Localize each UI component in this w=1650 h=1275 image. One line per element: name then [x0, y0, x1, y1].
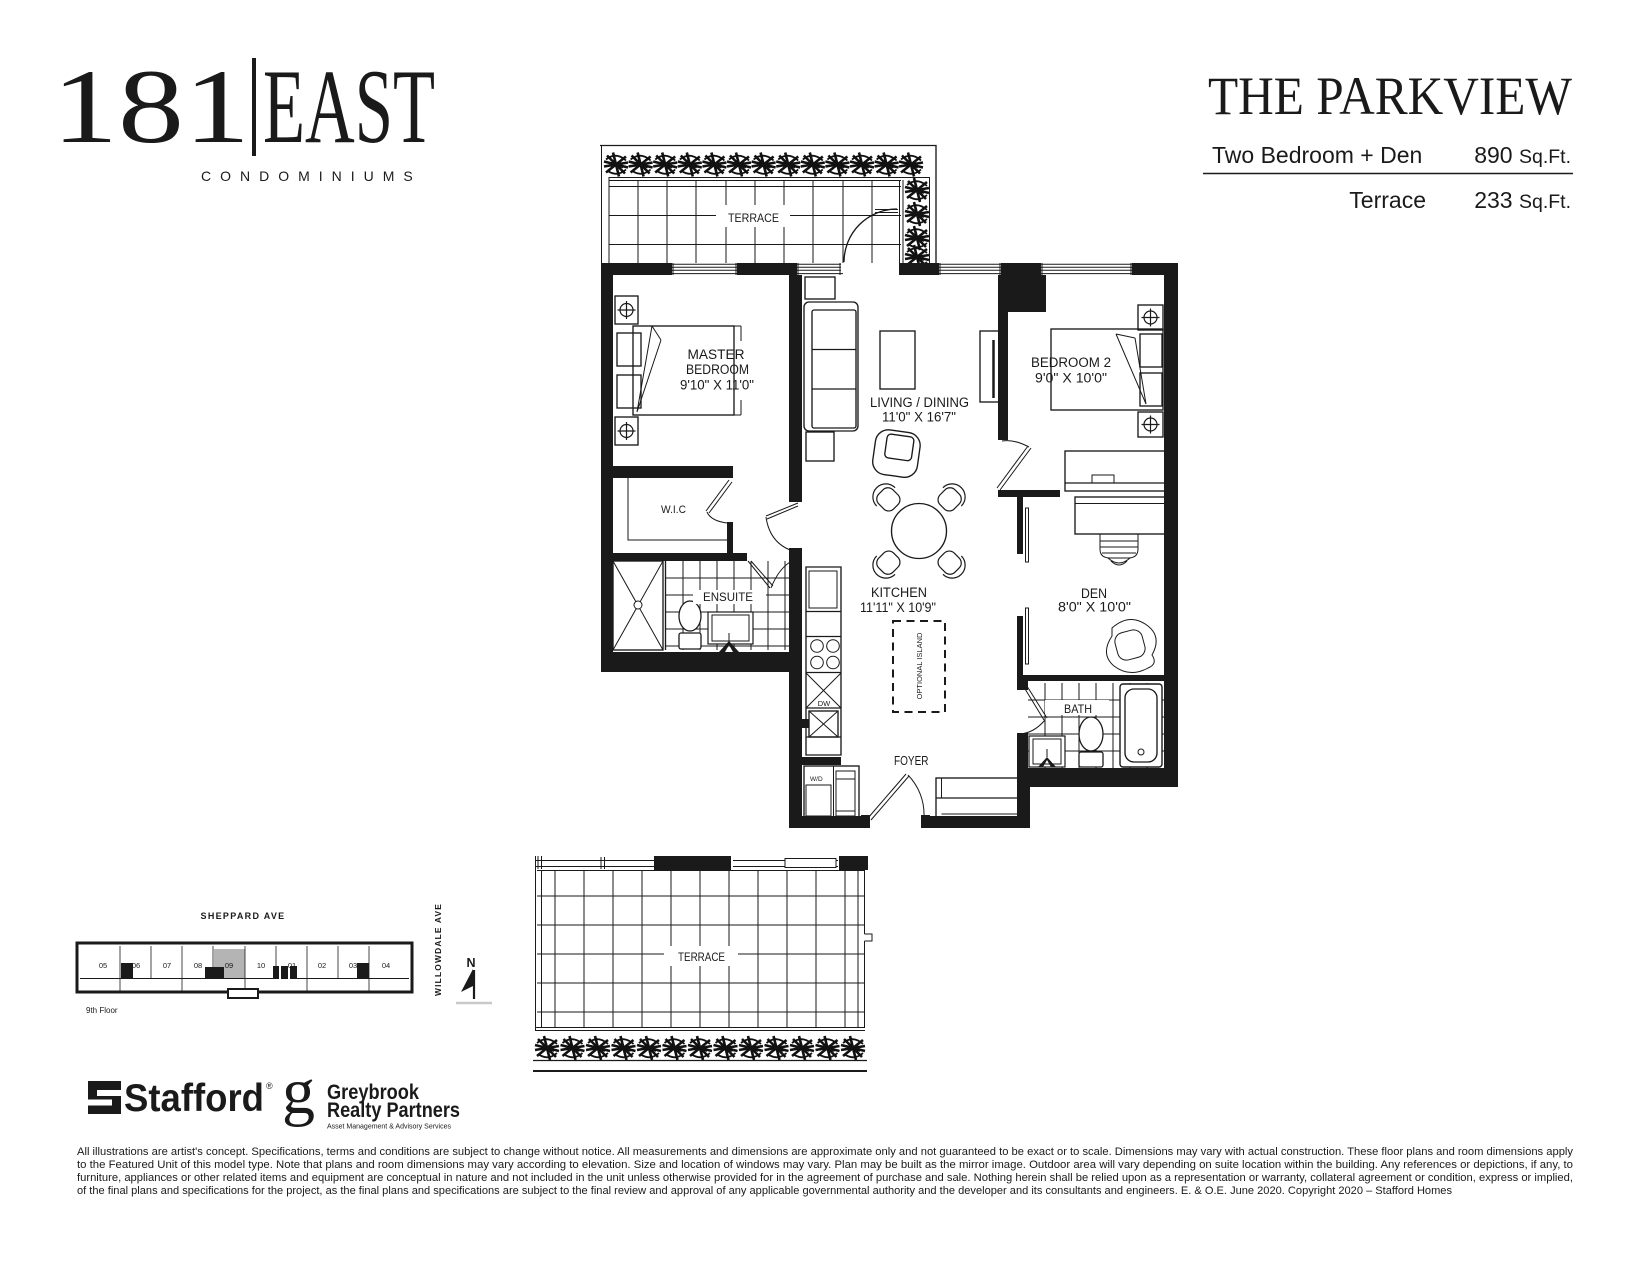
svg-text:06: 06 [132, 961, 140, 970]
svg-text:LIVING / DINING: LIVING / DINING [870, 395, 969, 410]
svg-text:9'0" X 10'0": 9'0" X 10'0" [1035, 371, 1107, 386]
svg-text:9th Floor: 9th Floor [86, 1006, 118, 1015]
svg-text:8'0" X 10'0": 8'0" X 10'0" [1058, 600, 1131, 615]
svg-text:890 Sq.Ft.: 890 Sq.Ft. [1474, 142, 1571, 168]
svg-text:233 Sq.Ft.: 233 Sq.Ft. [1474, 187, 1571, 213]
svg-text:Terrace: Terrace [1349, 187, 1426, 213]
svg-text:WILLOWDALE AVE: WILLOWDALE AVE [433, 903, 443, 996]
svg-text:CONDOMINIUMS: CONDOMINIUMS [201, 168, 422, 184]
svg-text:DW: DW [818, 699, 831, 708]
svg-text:Realty Partners: Realty Partners [327, 1099, 460, 1122]
svg-text:02: 02 [318, 961, 326, 970]
svg-text:W/D: W/D [810, 776, 823, 783]
svg-text:BATH: BATH [1064, 702, 1092, 716]
svg-text:Asset Management & Advisory Se: Asset Management & Advisory Services [327, 1122, 451, 1131]
svg-text:01: 01 [288, 961, 296, 970]
svg-text:TERRACE: TERRACE [678, 950, 725, 964]
svg-text:03: 03 [349, 961, 357, 970]
svg-text:FOYER: FOYER [894, 754, 929, 768]
svg-text:11'11" X 10'9": 11'11" X 10'9" [860, 600, 936, 615]
svg-text:W.I.C: W.I.C [661, 504, 686, 516]
svg-text:11'0" X 16'7": 11'0" X 16'7" [882, 410, 956, 425]
svg-text:04: 04 [382, 961, 390, 970]
svg-text:MASTER: MASTER [688, 347, 745, 362]
svg-text:TERRACE: TERRACE [728, 211, 779, 225]
svg-text:08: 08 [194, 961, 202, 970]
svg-text:07: 07 [163, 961, 171, 970]
svg-text:All illustrations are artist's: All illustrations are artist's concept. … [77, 1146, 1574, 1158]
svg-text:of the final plans and specifi: of the final plans and specifications fo… [77, 1185, 1453, 1197]
svg-text:to the Featured Unit of this m: to the Featured Unit of this model type.… [77, 1159, 1573, 1171]
svg-text:SHEPPARD AVE: SHEPPARD AVE [201, 911, 286, 921]
svg-text:THE PARKVIEW: THE PARKVIEW [1208, 66, 1572, 126]
svg-text:OPTIONAL ISLAND: OPTIONAL ISLAND [915, 632, 924, 699]
svg-text:®: ® [266, 1081, 273, 1091]
svg-text:g: g [282, 1055, 315, 1128]
svg-text:9'10" X 11'0": 9'10" X 11'0" [680, 378, 754, 393]
svg-text:Two Bedroom + Den: Two Bedroom + Den [1212, 142, 1422, 168]
svg-text:BEDROOM 2: BEDROOM 2 [1031, 355, 1111, 370]
svg-text:furniture, appliances or other: furniture, appliances or other related i… [77, 1172, 1573, 1184]
svg-text:10: 10 [257, 961, 265, 970]
svg-text:Stafford: Stafford [124, 1077, 264, 1120]
svg-text:05: 05 [99, 961, 107, 970]
svg-text:KITCHEN: KITCHEN [871, 585, 927, 600]
svg-text:181: 181 [52, 48, 250, 165]
svg-text:N: N [466, 956, 475, 970]
svg-text:09: 09 [225, 961, 233, 970]
svg-text:EAST: EAST [263, 48, 435, 165]
svg-text:BEDROOM: BEDROOM [686, 362, 749, 377]
svg-text:ENSUITE: ENSUITE [703, 592, 753, 604]
